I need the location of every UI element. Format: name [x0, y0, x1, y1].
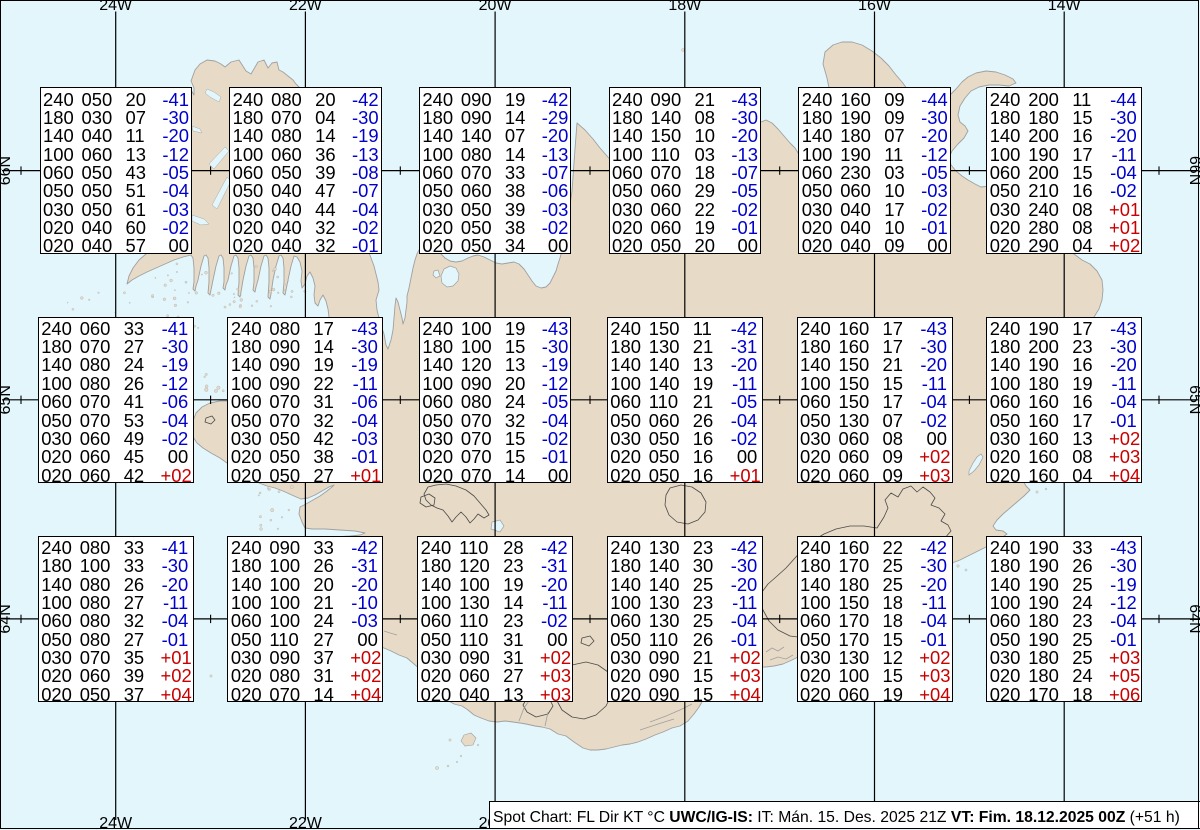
svg-text:22W: 22W	[289, 0, 323, 14]
svg-text:22W: 22W	[289, 815, 323, 830]
svg-text:24W: 24W	[99, 0, 133, 14]
svg-text:65N: 65N	[0, 385, 14, 414]
svg-text:24W: 24W	[99, 815, 133, 830]
svg-text:20W: 20W	[479, 0, 513, 14]
svg-text:66N: 66N	[0, 156, 14, 185]
svg-text:66N: 66N	[1186, 156, 1200, 185]
svg-text:18W: 18W	[668, 0, 702, 14]
svg-text:64N: 64N	[0, 604, 14, 633]
svg-text:65N: 65N	[1186, 385, 1200, 414]
svg-text:14W: 14W	[1048, 0, 1082, 14]
svg-text:16W: 16W	[858, 0, 892, 14]
svg-text:64N: 64N	[1186, 604, 1200, 633]
